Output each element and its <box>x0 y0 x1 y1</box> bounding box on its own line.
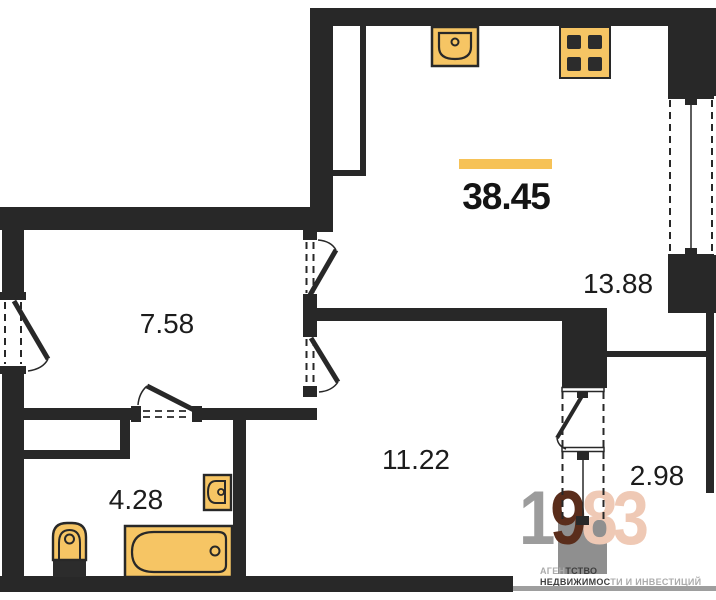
room-door <box>307 338 339 392</box>
bath-door-jamb-left <box>131 406 141 422</box>
balcony-window <box>576 452 589 525</box>
total-area-bar <box>459 159 552 169</box>
walls <box>0 8 716 592</box>
kitchen-shaft-wall-bottom <box>332 170 366 176</box>
wall-left-upper <box>2 207 24 299</box>
niche-wall-bottom <box>22 450 130 459</box>
entrance-jamb-top <box>0 292 26 300</box>
wall-balcony-top <box>605 351 710 357</box>
wall-right-thin <box>706 313 714 493</box>
wall-room-divider <box>303 308 565 321</box>
doors <box>5 240 604 520</box>
wall-top-right-chunk <box>668 8 716 96</box>
wall-right-chunk-mid <box>668 255 716 313</box>
wall-top <box>310 8 716 26</box>
area-label-room: 11.22 <box>382 444 450 476</box>
stove-icon <box>560 27 610 78</box>
kitchen-sink-icon <box>432 27 478 66</box>
bathtub-icon <box>125 526 232 577</box>
kitchen-door <box>307 240 337 295</box>
wall-balcony-chunk <box>562 308 607 388</box>
toilet-icon <box>204 475 231 510</box>
wall-kitchen-left <box>310 8 333 232</box>
washbasin-icon <box>53 523 86 577</box>
total-area: 38.45 <box>459 159 553 218</box>
door1-jamb-top <box>303 230 317 240</box>
entrance-door <box>5 301 48 371</box>
door2-jamb-bottom <box>303 386 317 397</box>
floor-plan-drawing <box>0 0 716 600</box>
wall-bathroom-top-right <box>192 408 317 420</box>
area-label-balcony: 2.98 <box>630 460 685 492</box>
wall-hallway-top <box>0 207 310 230</box>
wall-between-doors <box>303 305 317 337</box>
area-label-kitchen-living: 13.88 <box>583 268 653 300</box>
wall-bottom <box>0 576 513 592</box>
wall-left-lower <box>2 366 24 592</box>
area-label-hallway: 7.58 <box>140 308 195 340</box>
kitchen-window <box>668 96 714 257</box>
wall-bathroom-right <box>233 420 246 576</box>
total-area-value: 38.45 <box>459 176 553 218</box>
bathroom-door <box>138 386 194 417</box>
kitchen-shaft-wall-right <box>360 26 366 176</box>
area-label-bathroom: 4.28 <box>109 484 164 516</box>
door1-jamb-bottom <box>303 294 317 305</box>
floor-plan: 1 9 83 АГЕНТСТВО НЕДВИЖИМОСТИ И ИНВЕСТИЦ… <box>0 0 716 600</box>
wall-bathroom-top-left <box>24 408 133 420</box>
